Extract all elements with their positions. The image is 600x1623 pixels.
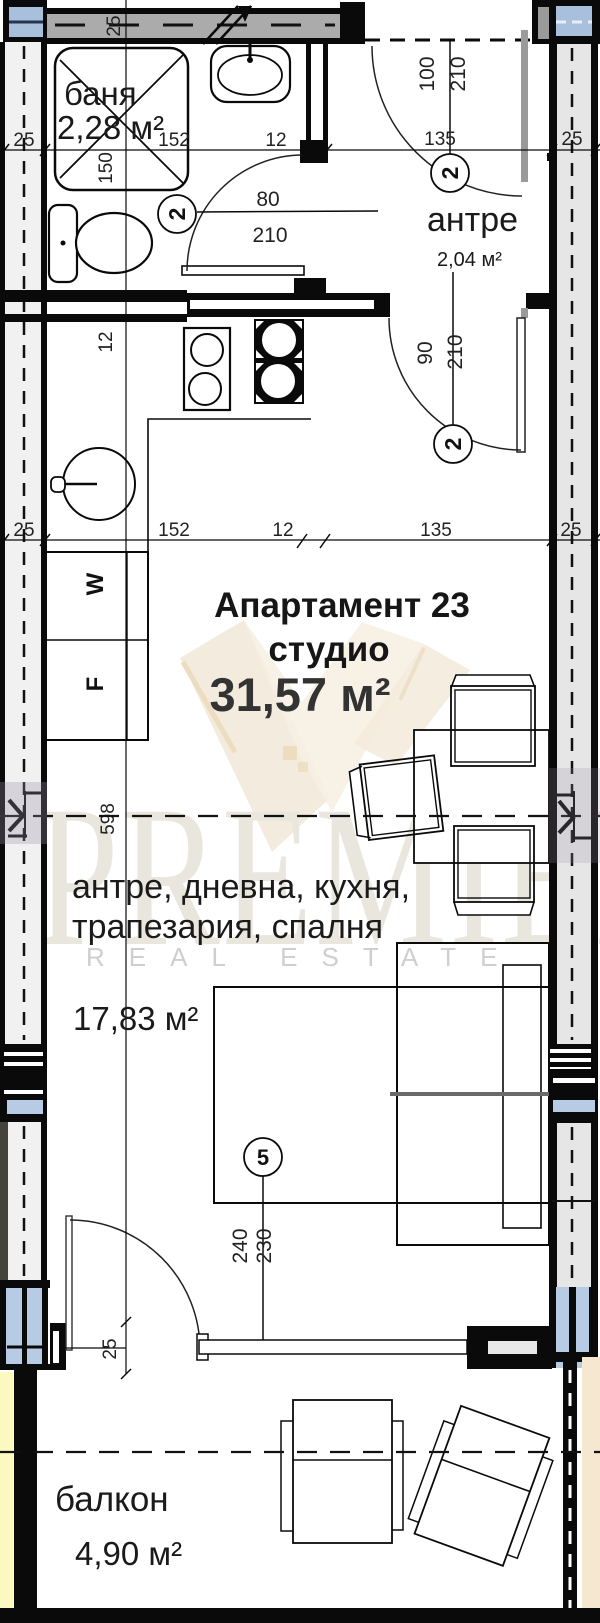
svg-text:2: 2	[164, 208, 190, 221]
svg-text:135: 135	[424, 129, 456, 150]
svg-text:25: 25	[13, 130, 34, 151]
svg-text:25: 25	[560, 520, 581, 541]
svg-text:12: 12	[272, 520, 293, 541]
svg-text:80: 80	[256, 188, 279, 211]
svg-text:25: 25	[561, 129, 582, 150]
svg-text:REAL ESTATE: REAL ESTATE	[86, 942, 521, 972]
svg-text:12: 12	[96, 331, 117, 352]
svg-text:152: 152	[158, 520, 190, 541]
svg-text:12: 12	[265, 130, 286, 151]
svg-text:W: W	[82, 572, 109, 595]
svg-text:135: 135	[420, 520, 452, 541]
svg-text:25: 25	[13, 520, 34, 541]
svg-text:230: 230	[253, 1228, 276, 1263]
svg-text:баня: баня	[64, 75, 137, 112]
svg-text:210: 210	[444, 334, 467, 369]
svg-text:100: 100	[416, 56, 439, 91]
svg-text:F: F	[82, 677, 109, 692]
svg-text:31,57 м²: 31,57 м²	[209, 668, 390, 721]
svg-text:25: 25	[100, 1338, 121, 1359]
svg-text:2: 2	[440, 438, 466, 451]
svg-text:2: 2	[437, 167, 463, 180]
svg-text:2,28 м²: 2,28 м²	[57, 109, 164, 146]
svg-text:4,90 м²: 4,90 м²	[75, 1535, 182, 1572]
svg-text:студио: студио	[268, 630, 389, 669]
svg-text:трапезария, спалня: трапезария, спалня	[72, 908, 383, 946]
svg-text:598: 598	[98, 803, 119, 835]
svg-text:17,83 м²: 17,83 м²	[73, 1000, 198, 1037]
svg-text:90: 90	[414, 341, 437, 364]
svg-text:балкон: балкон	[55, 1480, 169, 1519]
svg-text:25: 25	[104, 15, 125, 36]
svg-text:240: 240	[229, 1228, 252, 1263]
svg-text:210: 210	[252, 224, 287, 247]
svg-text:Апартамент 23: Апартамент 23	[214, 586, 470, 625]
svg-text:2,04 м²: 2,04 м²	[437, 249, 502, 271]
svg-text:150: 150	[96, 152, 117, 184]
svg-text:210: 210	[447, 56, 470, 91]
svg-text:антре: антре	[427, 201, 518, 239]
svg-text:5: 5	[257, 1145, 269, 1170]
svg-text:антре, дневна, кухня,: антре, дневна, кухня,	[72, 868, 410, 906]
